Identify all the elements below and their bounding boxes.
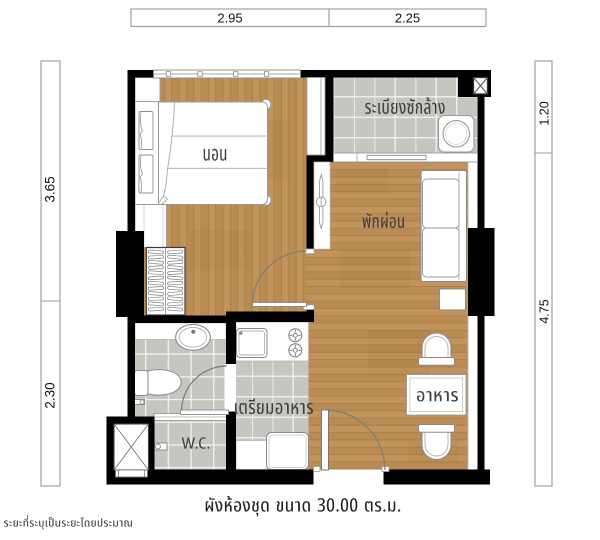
- svg-text:2.25: 2.25: [395, 11, 420, 26]
- svg-text:3.65: 3.65: [42, 176, 57, 202]
- svg-text:4.75: 4.75: [537, 299, 551, 323]
- svg-text:2.30: 2.30: [43, 382, 58, 408]
- svg-text:2.95: 2.95: [217, 11, 242, 26]
- svg-text:1.20: 1.20: [537, 101, 551, 125]
